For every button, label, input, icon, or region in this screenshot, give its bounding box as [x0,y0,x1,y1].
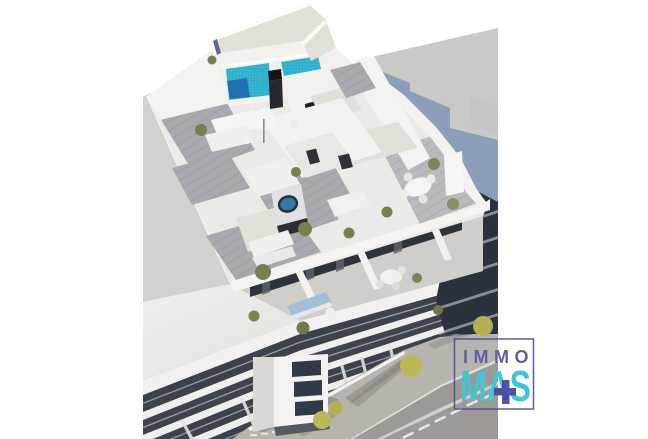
svg-text:MAS: MAS [460,362,531,411]
